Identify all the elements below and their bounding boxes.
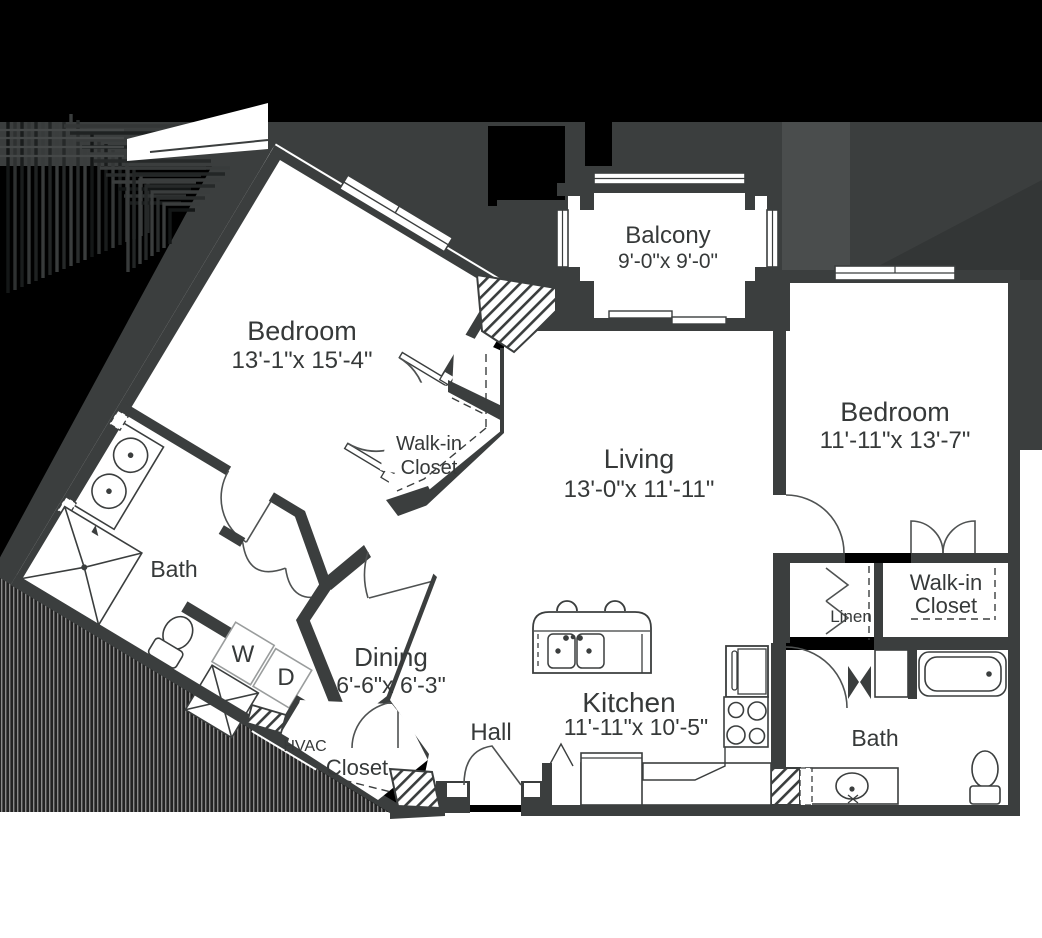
svg-text:Hall: Hall	[470, 719, 511, 746]
svg-text:HVAC: HVAC	[283, 738, 326, 755]
svg-text:Living: Living	[604, 444, 675, 474]
svg-text:Bedroom: Bedroom	[840, 397, 950, 427]
svg-text:9'-0"x 9'-0": 9'-0"x 9'-0"	[618, 250, 718, 273]
svg-text:13'-1"x 15'-4": 13'-1"x 15'-4"	[232, 347, 373, 374]
svg-text:Linen: Linen	[830, 607, 872, 626]
svg-text:D: D	[277, 664, 294, 691]
svg-text:Bedroom: Bedroom	[247, 316, 357, 346]
svg-text:Walk-in: Walk-in	[910, 570, 983, 595]
svg-text:Balcony: Balcony	[625, 222, 710, 249]
svg-text:11'-11"x 10'-5": 11'-11"x 10'-5"	[564, 714, 708, 740]
svg-text:W: W	[232, 641, 255, 668]
svg-text:6'-6"x 6'-3": 6'-6"x 6'-3"	[336, 672, 446, 698]
svg-text:Closet: Closet	[915, 593, 977, 618]
svg-text:13'-0"x 11'-11": 13'-0"x 11'-11"	[564, 476, 715, 503]
svg-text:11'-11"x 13'-7": 11'-11"x 13'-7"	[820, 427, 971, 454]
svg-text:Bath: Bath	[150, 556, 197, 582]
svg-text:Bath: Bath	[851, 725, 898, 751]
svg-text:Walk-in: Walk-in	[396, 433, 462, 455]
svg-text:Closet: Closet	[401, 457, 458, 479]
svg-text:Dining: Dining	[354, 642, 428, 672]
svg-text:Closet: Closet	[326, 755, 388, 780]
